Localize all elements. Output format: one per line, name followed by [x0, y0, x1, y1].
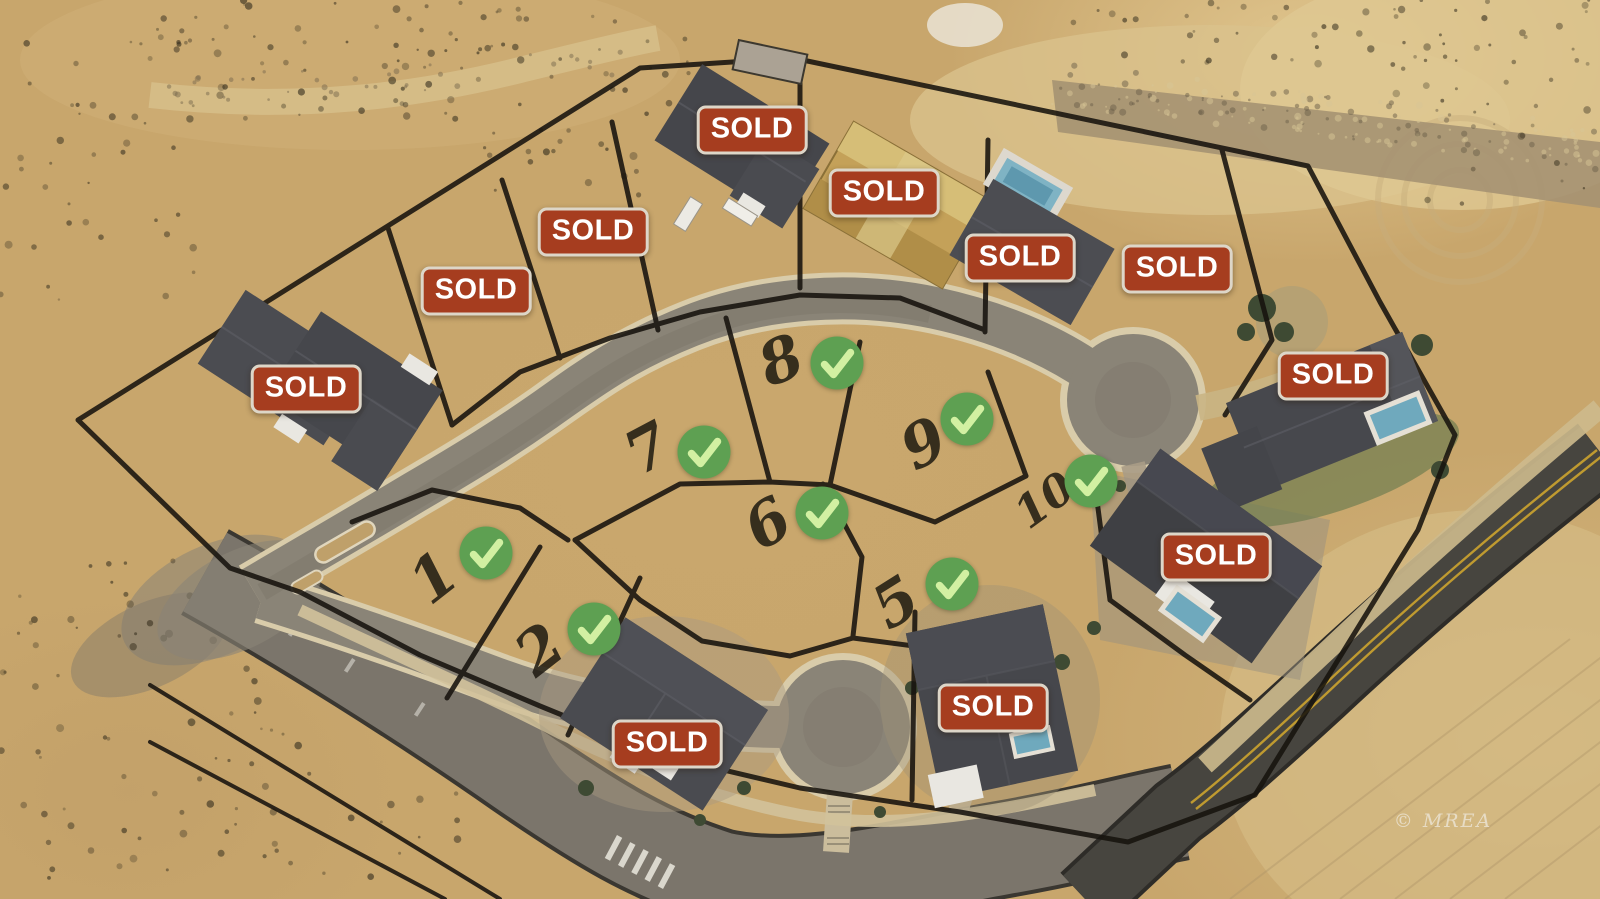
available-check-icon-lot-6	[796, 487, 849, 540]
sold-badge: SOLD	[251, 365, 362, 414]
aerial-lot-map: © MREA SOLDSOLDSOLDSOLDSOLDSOLDSOLDSOLDS…	[0, 0, 1600, 899]
available-check-icon-lot-7	[678, 426, 731, 479]
sold-badge: SOLD	[1278, 352, 1389, 401]
available-check-icon-lot-8	[811, 337, 864, 390]
sold-badge: SOLD	[938, 684, 1049, 733]
available-check-icon-lot-1	[460, 527, 513, 580]
sold-badge: SOLD	[538, 208, 649, 257]
sold-badge: SOLD	[1122, 245, 1233, 294]
sold-badge: SOLD	[965, 234, 1076, 283]
watermark: © MREA	[1394, 810, 1492, 832]
sold-badge: SOLD	[697, 106, 808, 155]
available-check-icon-lot-9	[941, 393, 994, 446]
sold-badge: SOLD	[421, 267, 532, 316]
available-check-icon-lot-10	[1065, 455, 1118, 508]
sold-badge: SOLD	[612, 720, 723, 769]
available-check-icon-lot-2	[568, 603, 621, 656]
sold-badge: SOLD	[1161, 533, 1272, 582]
sold-badge: SOLD	[829, 169, 940, 218]
available-check-icon-lot-5	[926, 558, 979, 611]
